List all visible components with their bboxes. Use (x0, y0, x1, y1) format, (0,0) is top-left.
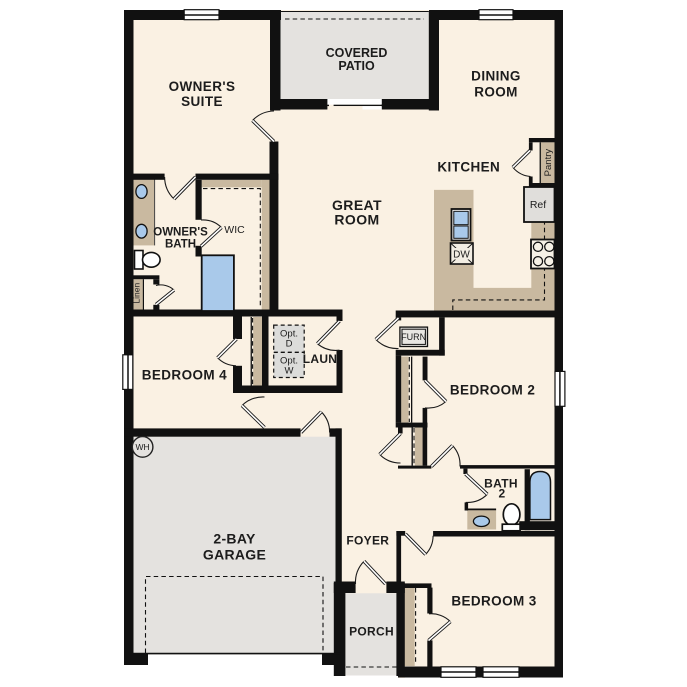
svg-text:PORCH: PORCH (349, 625, 394, 639)
svg-text:2-BAY: 2-BAY (213, 531, 256, 547)
svg-text:ROOM: ROOM (334, 212, 379, 228)
svg-text:WH: WH (136, 442, 150, 452)
svg-text:FURN: FURN (401, 332, 426, 342)
svg-text:2: 2 (499, 487, 506, 501)
svg-text:Ref: Ref (530, 199, 546, 211)
svg-text:PATIO: PATIO (338, 59, 375, 73)
svg-text:D: D (286, 339, 293, 350)
svg-text:GARAGE: GARAGE (203, 547, 266, 563)
svg-text:ROOM: ROOM (474, 85, 518, 100)
svg-text:BATH: BATH (165, 239, 196, 251)
svg-text:BEDROOM 4: BEDROOM 4 (142, 368, 227, 383)
svg-text:OWNER'S: OWNER'S (169, 79, 236, 94)
svg-text:DINING: DINING (471, 69, 521, 84)
svg-text:BEDROOM 2: BEDROOM 2 (450, 383, 535, 398)
svg-text:COVERED: COVERED (326, 46, 388, 60)
svg-text:W: W (285, 366, 294, 377)
svg-text:SUITE: SUITE (181, 94, 223, 109)
svg-text:FOYER: FOYER (346, 534, 389, 548)
svg-text:LAUN: LAUN (303, 352, 338, 366)
svg-text:WIC: WIC (224, 224, 245, 236)
svg-text:Pantry: Pantry (543, 149, 554, 177)
svg-text:BEDROOM 3: BEDROOM 3 (451, 594, 536, 609)
svg-text:OWNER'S: OWNER'S (153, 227, 208, 239)
svg-text:Linen: Linen (132, 283, 142, 304)
svg-text:DW: DW (453, 250, 470, 261)
svg-text:KITCHEN: KITCHEN (437, 160, 500, 175)
